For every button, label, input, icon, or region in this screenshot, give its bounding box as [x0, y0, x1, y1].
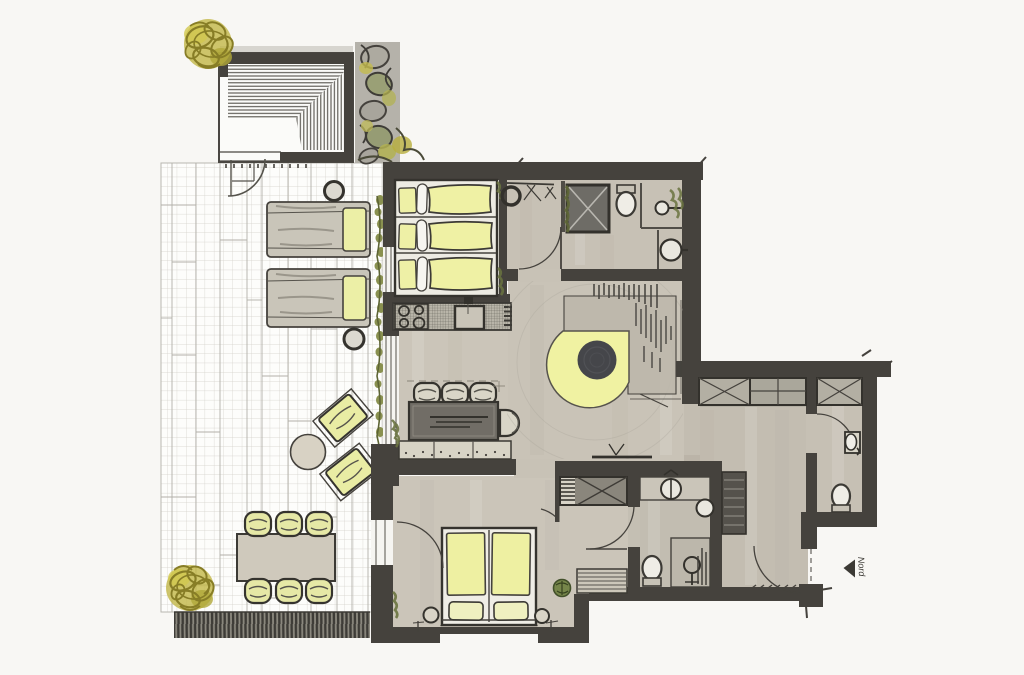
svg-text:Nord: Nord — [856, 557, 867, 578]
